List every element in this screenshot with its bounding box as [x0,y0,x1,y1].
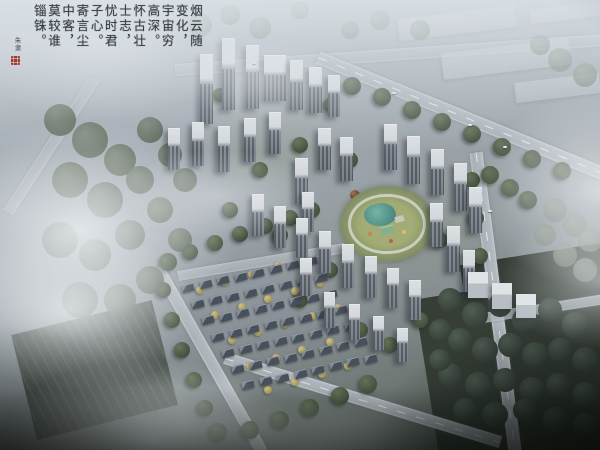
aerial-rendering-canvas: 烟云随变化，宇宙穷高深。怀古壮士志，忧时君子心。寄言尘中客，莫较谁锱铢。 朱隶 [0,0,600,450]
calligraphy-signature: 朱隶 [11,37,21,55]
red-seal-stamp [11,56,20,65]
calligraphy-poem: 烟云随变化，宇宙穷高深。怀古壮士志，忧时君子心。寄言尘中客，莫较谁锱铢。 [24,4,202,52]
vignette-overlay [0,0,600,450]
